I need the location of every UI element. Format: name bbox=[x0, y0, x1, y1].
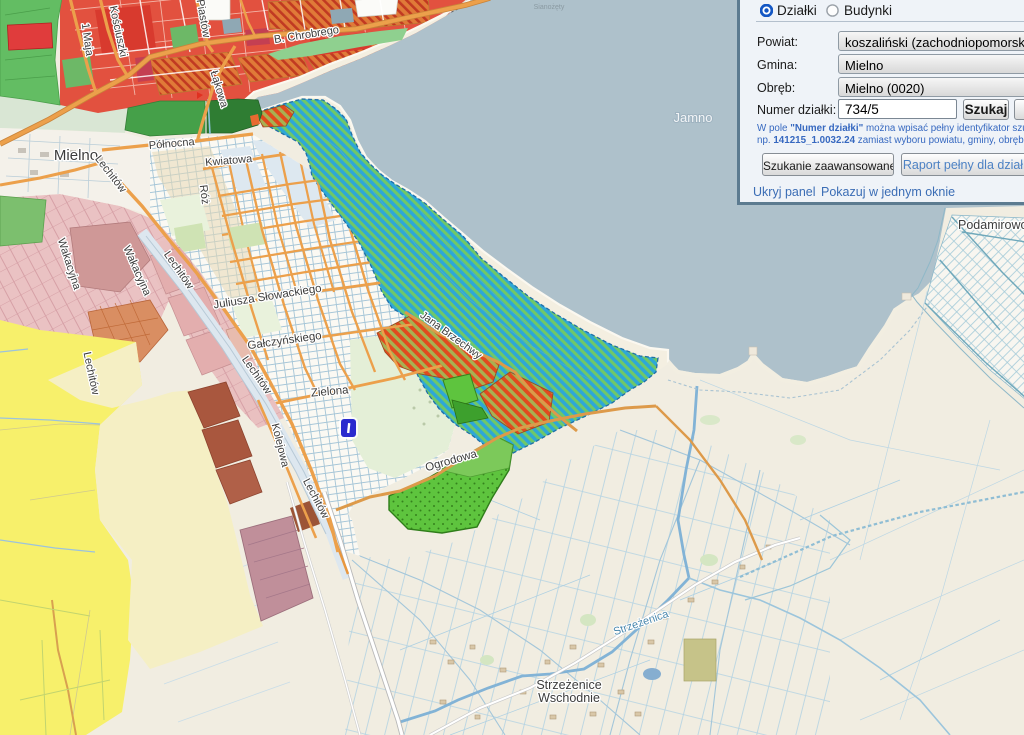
svg-text:Wschodnie: Wschodnie bbox=[538, 691, 600, 705]
svg-text:Podamirowo: Podamirowo bbox=[958, 218, 1024, 232]
svg-text:Jamno: Jamno bbox=[673, 110, 712, 125]
svg-text:Strzeżenice: Strzeżenice bbox=[536, 678, 601, 692]
svg-text:Sianożęty: Sianożęty bbox=[534, 4, 565, 11]
svg-text:Róż: Róż bbox=[197, 184, 211, 205]
svg-text:Mielno: Mielno bbox=[54, 147, 98, 164]
